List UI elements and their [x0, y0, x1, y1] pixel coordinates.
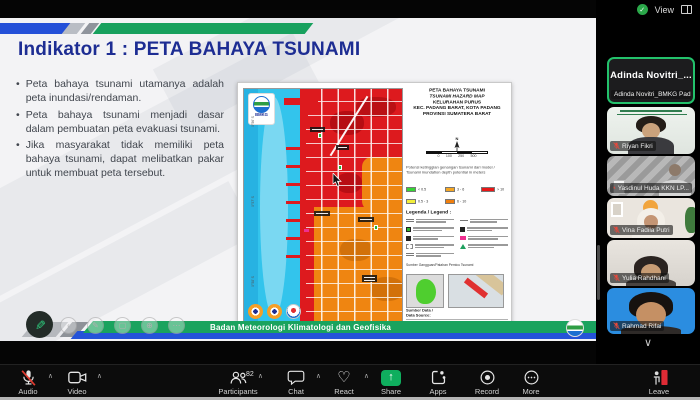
participant-name-badge: Vina Fadila Putri	[610, 225, 673, 235]
sea-shallow-band	[260, 97, 288, 317]
kelurahan-inset-map	[406, 274, 444, 308]
chevron-down-icon: ∨	[644, 337, 652, 349]
encryption-shield-icon[interactable]: ✓	[637, 4, 648, 15]
map-title-block: PETA BAHAYA TSUNAMI TSUNAMI HAZARD MAP K…	[406, 88, 508, 118]
background-object	[611, 202, 623, 217]
depth-swatch	[406, 187, 416, 192]
more-participants-button[interactable]: ∨	[596, 338, 700, 349]
view-control[interactable]: ✓ View	[637, 4, 692, 15]
inset-caption: Sumber Gangguan/Patahan Pemicu Tsunami	[406, 263, 449, 267]
pier	[300, 104, 308, 118]
muted-mic-icon	[613, 322, 620, 330]
participants-options-caret[interactable]: ∧	[258, 372, 263, 380]
bpbd-logo	[267, 304, 282, 319]
participant-tile-rahmad[interactable]: Rahmad Rifai	[607, 288, 695, 334]
lat-label: 0°56' S	[251, 116, 255, 127]
green-marker	[338, 165, 342, 170]
heart-icon: ♡	[337, 370, 350, 385]
slide-title: Indikator 1 : PETA BAHAYA TSUNAMI	[18, 39, 360, 61]
participants-count: 82	[246, 371, 254, 378]
participant-name-badge: Yasdinul Huda KKN LP...	[610, 183, 692, 193]
banner-text: Badan Meteorologi Klimatologi dan Geofis…	[210, 323, 391, 332]
participant-name-badge: Adinda Novitri_BMKG Pad...	[611, 90, 691, 99]
source-heading: Data Source:	[406, 313, 457, 315]
place-label	[336, 145, 349, 150]
depth-swatch	[445, 199, 455, 204]
ribbon-green	[93, 23, 314, 34]
pier	[286, 165, 302, 168]
tsunami-source-inset-map	[448, 274, 504, 308]
depth-swatch	[445, 187, 455, 192]
lat-label: 0°58' S	[251, 276, 255, 287]
muted-mic-icon	[613, 226, 620, 234]
participant-name-badge: Riyan Fikri	[610, 141, 656, 151]
participants-sidebar: ✓ View Adinda Novitri_... Adinda Novitri…	[596, 0, 700, 364]
road-grid	[306, 89, 402, 325]
green-marker	[374, 225, 378, 230]
more-button[interactable]: More	[503, 369, 559, 396]
agency-logos	[248, 304, 301, 319]
zoom-meeting-window: Indikator 1 : PETA BAHAYA TSUNAMI • Peta…	[0, 0, 700, 400]
participant-name-badge: Rahmad Rifai	[610, 321, 664, 331]
legend-items	[406, 219, 508, 262]
background-object	[685, 207, 695, 233]
map-canvas: BMKG 0°56' S 0°57' S 0°58' S	[243, 88, 403, 326]
share-screen-icon: ↑	[381, 370, 401, 386]
bmkg-logo	[566, 319, 584, 337]
more-tools-button[interactable]: ⋯	[168, 317, 185, 334]
participant-tile-adinda[interactable]: Adinda Novitri_... Adinda Novitri_BMKG P…	[607, 57, 695, 104]
place-label	[314, 211, 330, 216]
depth-class-legend: < 0.5 0.5 - 3 3 - 6 6 - 10 > 10	[406, 185, 508, 206]
depth-swatch	[481, 187, 495, 192]
north-arrow: N	[406, 134, 508, 150]
bullet-item: • Peta bahaya tsunami menjadi dasar dala…	[16, 109, 224, 137]
apps-button[interactable]: Apps	[410, 369, 466, 396]
video-button[interactable]: Video ∧	[49, 369, 105, 396]
shape-button[interactable]: ▢	[114, 317, 131, 334]
lat-label: 0°57' S	[251, 196, 255, 207]
bullet-item: • Peta bahaya tsunami utamanya adalah pe…	[16, 78, 224, 106]
pen-icon: ✎	[32, 319, 48, 330]
more-icon	[503, 369, 559, 386]
tsunami-hazard-map-figure: BMKG 0°56' S 0°57' S 0°58' S	[237, 82, 512, 332]
leave-icon	[631, 369, 687, 386]
bmkg-logo-circle	[253, 96, 270, 113]
annotate-pen-button[interactable]: ✎	[26, 311, 53, 338]
bullet-glyph: •	[16, 109, 20, 137]
pier	[286, 255, 302, 258]
legend-title: Legenda / Legend :	[406, 209, 469, 215]
participant-tile-yasdinul[interactable]: Yasdinul Huda KKN LP...	[607, 156, 695, 196]
shared-screen-slide: Indikator 1 : PETA BAHAYA TSUNAMI • Peta…	[0, 18, 596, 341]
video-options-caret[interactable]: ∧	[97, 372, 102, 380]
inset-maps	[406, 274, 508, 308]
participant-tile-vina[interactable]: Vina Fadila Putri	[607, 198, 695, 238]
meeting-toolbar: Audio ∧ Video ∧ 82 Participants ∧ Chat ∧	[0, 364, 700, 397]
draw-button[interactable]: ✎	[87, 317, 104, 334]
participant-tile-riyan[interactable]: Riyan Fikri	[607, 107, 695, 154]
depth-swatch	[406, 199, 416, 204]
source-heading: Sumber Data /	[406, 308, 457, 310]
bullet-glyph: •	[16, 139, 20, 181]
pier	[286, 183, 302, 186]
view-label[interactable]: View	[655, 5, 674, 15]
participant-tile-yulia[interactable]: Yulia Rahdhani	[607, 240, 695, 286]
muted-mic-icon	[613, 184, 616, 192]
view-layout-icon[interactable]	[681, 5, 692, 14]
leave-button[interactable]: Leave	[631, 369, 687, 396]
place-label	[362, 275, 377, 282]
pier	[286, 237, 302, 240]
pier	[286, 201, 302, 204]
sidebar-scrollbar[interactable]	[597, 245, 600, 300]
apps-icon	[410, 369, 466, 386]
muted-mic-icon	[613, 274, 620, 282]
map-legend-panel: PETA BAHAYA TSUNAMI TSUNAMI HAZARD MAP K…	[406, 88, 508, 326]
pier	[286, 219, 302, 222]
bullet-list: • Peta bahaya tsunami utamanya adalah pe…	[16, 78, 224, 184]
scale-ticks: 0100250500	[423, 154, 491, 158]
mouse-cursor	[332, 173, 342, 192]
annotation-toolbar: ‹ ✎ ▢ ⊕ ⋯	[60, 317, 185, 334]
prev-button[interactable]: ‹	[60, 317, 77, 334]
green-marker	[318, 133, 322, 138]
person-face	[669, 164, 681, 176]
map-note: Potensi ketinggian genangan tsunami dari…	[406, 165, 501, 175]
muted-mic-icon	[613, 142, 620, 150]
bpbd-logo	[248, 304, 263, 319]
participant-name-badge: Yulia Rahdhani	[610, 273, 669, 283]
pier	[286, 147, 302, 150]
bullet-glyph: •	[16, 78, 20, 106]
audio-button[interactable]: Audio ∧	[0, 369, 56, 396]
pink-marker	[304, 229, 309, 232]
active-speaker-name: Adinda Novitri_...	[609, 70, 693, 81]
bullet-item: • Jika masyarakat tidak memiliki peta ba…	[16, 139, 224, 181]
zoom-button[interactable]: ⊕	[141, 317, 158, 334]
participants-button[interactable]: 82 Participants ∧	[210, 369, 266, 396]
agency-logo	[286, 304, 301, 319]
place-label	[310, 127, 325, 132]
place-label	[358, 217, 374, 222]
